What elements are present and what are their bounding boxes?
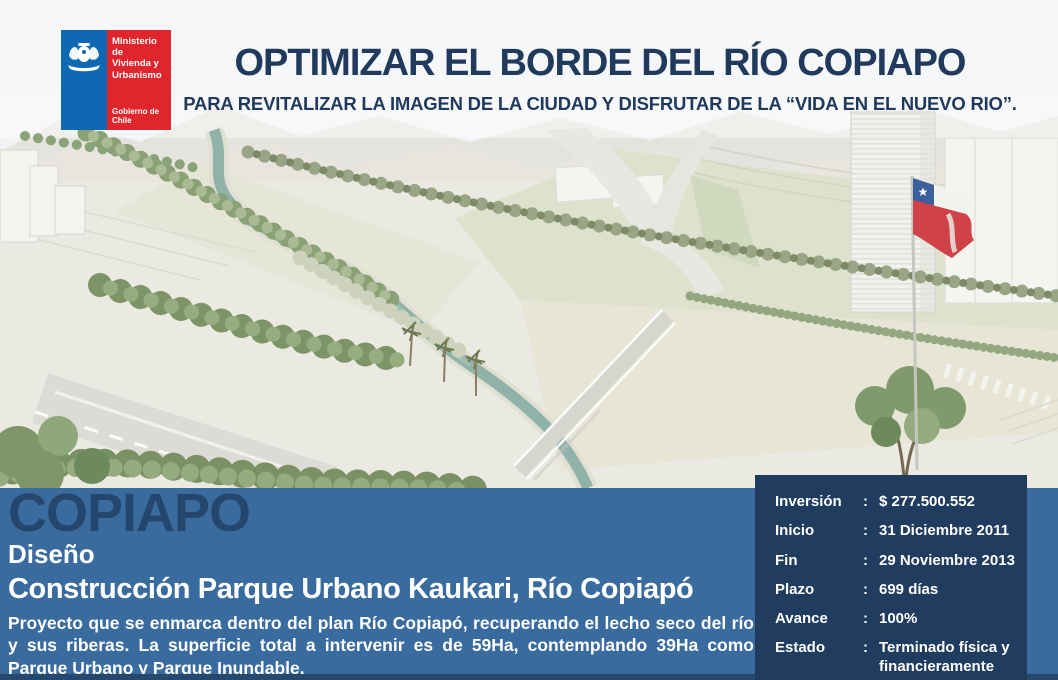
- detail-label: Plazo: [775, 581, 863, 600]
- detail-value: 29 Noviembre 2013: [879, 552, 1021, 571]
- detail-label: Fin: [775, 552, 863, 571]
- detail-value: 31 Diciembre 2011: [879, 522, 1021, 541]
- detail-separator: :: [863, 639, 879, 677]
- detail-separator: :: [863, 493, 879, 512]
- project-description: Proyecto que se enmarca dentro del plan …: [8, 612, 754, 680]
- detail-label: Inversión: [775, 493, 863, 512]
- detail-separator: :: [863, 522, 879, 541]
- logo-red-panel: Ministerio de Vivienda y Urbanismo Gobie…: [107, 30, 171, 130]
- detail-separator: :: [863, 581, 879, 600]
- ministry-name: Ministerio de Vivienda y Urbanismo: [112, 36, 167, 81]
- detail-label: Estado: [775, 639, 863, 677]
- city-name: COPIAPO: [8, 488, 754, 540]
- detail-separator: :: [863, 552, 879, 571]
- project-slide: Ministerio de Vivienda y Urbanismo Gobie…: [0, 0, 1058, 680]
- detail-label: Avance: [775, 610, 863, 629]
- detail-row-plazo: Plazo : 699 días: [775, 581, 1021, 600]
- detail-row-avance: Avance : 100%: [775, 610, 1021, 629]
- detail-value: $ 277.500.552: [879, 493, 1021, 512]
- detail-label: Inicio: [775, 522, 863, 541]
- page-subtitle: PARA REVITALIZAR LA IMAGEN DE LA CIUDAD …: [130, 93, 1058, 115]
- project-details-panel: Inversión : $ 277.500.552 Inicio : 31 Di…: [755, 475, 1027, 680]
- detail-row-inversion: Inversión : $ 277.500.552: [775, 493, 1021, 512]
- chile-coat-of-arms-icon: [64, 39, 104, 77]
- logo-blue-panel: [61, 30, 107, 130]
- detail-separator: :: [863, 610, 879, 629]
- ministry-logo: Ministerio de Vivienda y Urbanismo Gobie…: [61, 30, 171, 130]
- project-title: Construcción Parque Urbano Kaukari, Río …: [8, 574, 754, 604]
- detail-row-fin: Fin : 29 Noviembre 2013: [775, 552, 1021, 571]
- project-stage: Diseño: [8, 541, 754, 568]
- government-label: Gobierno de Chile: [112, 107, 167, 125]
- detail-value: 699 días: [879, 581, 1021, 600]
- slide-header: OPTIMIZAR EL BORDE DEL RÍO COPIAPO PARA …: [130, 44, 1058, 115]
- detail-row-inicio: Inicio : 31 Diciembre 2011: [775, 522, 1021, 541]
- detail-row-estado: Estado : Terminado física y financierame…: [775, 639, 1021, 677]
- detail-value: 100%: [879, 610, 1021, 629]
- detail-value: Terminado física y financieramente: [879, 639, 1021, 677]
- page-title: OPTIMIZAR EL BORDE DEL RÍO COPIAPO: [130, 44, 1058, 84]
